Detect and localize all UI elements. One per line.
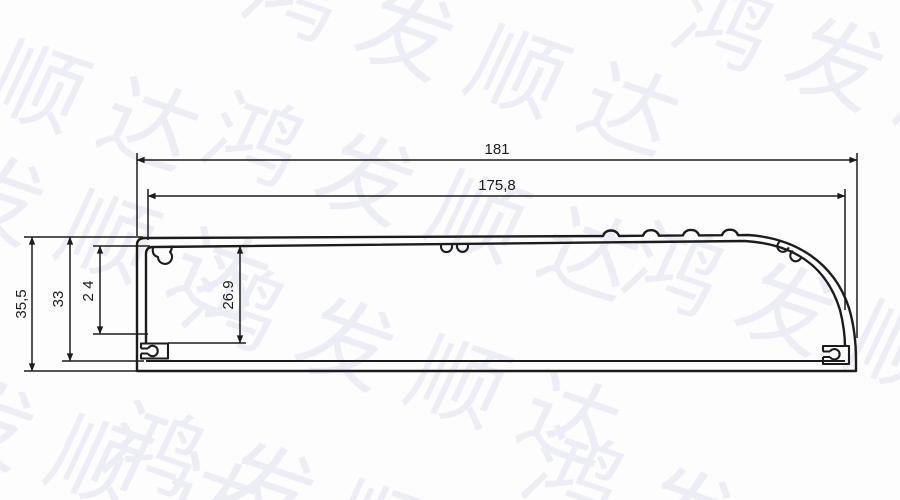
dimension-overall-height-label: 35,5 — [13, 289, 30, 318]
dimension-overall-width-label: 181 — [484, 141, 509, 158]
screw-port-top-left — [153, 246, 172, 264]
profile-drawing: 181 175,8 35,5 33 2 4 26.9 — [0, 0, 900, 500]
screw-boss-left — [141, 344, 168, 359]
dimension-overall-height: 35,5 — [13, 237, 32, 371]
dimension-inner-width-label: 175,8 — [478, 177, 516, 194]
dimension-cavity-height: 26.9 — [220, 246, 240, 343]
dimension-inner-height-label: 33 — [50, 291, 67, 308]
dimensions: 181 175,8 35,5 33 2 4 26.9 — [13, 141, 857, 371]
inner-contour — [146, 241, 845, 347]
dimension-left-cavity-height-label: 2 4 — [80, 281, 97, 302]
dimension-inner-height: 33 — [50, 237, 70, 361]
dimension-cavity-height-label: 26.9 — [220, 280, 237, 309]
dimension-left-cavity-height: 2 4 — [80, 246, 100, 334]
extension-lines — [24, 153, 857, 371]
outer-contour — [137, 230, 856, 371]
dimension-inner-width: 175,8 — [148, 177, 845, 196]
extrusion-profile — [137, 230, 856, 371]
technical-drawing-page: 鸿发顺达鸿发顺达鸿发顺达鸿发顺达鸿发顺达鸿发顺达鸿发顺达鸿发顺达鸿发顺达鸿发顺达 — [0, 0, 900, 500]
dimension-overall-width: 181 — [137, 141, 857, 160]
